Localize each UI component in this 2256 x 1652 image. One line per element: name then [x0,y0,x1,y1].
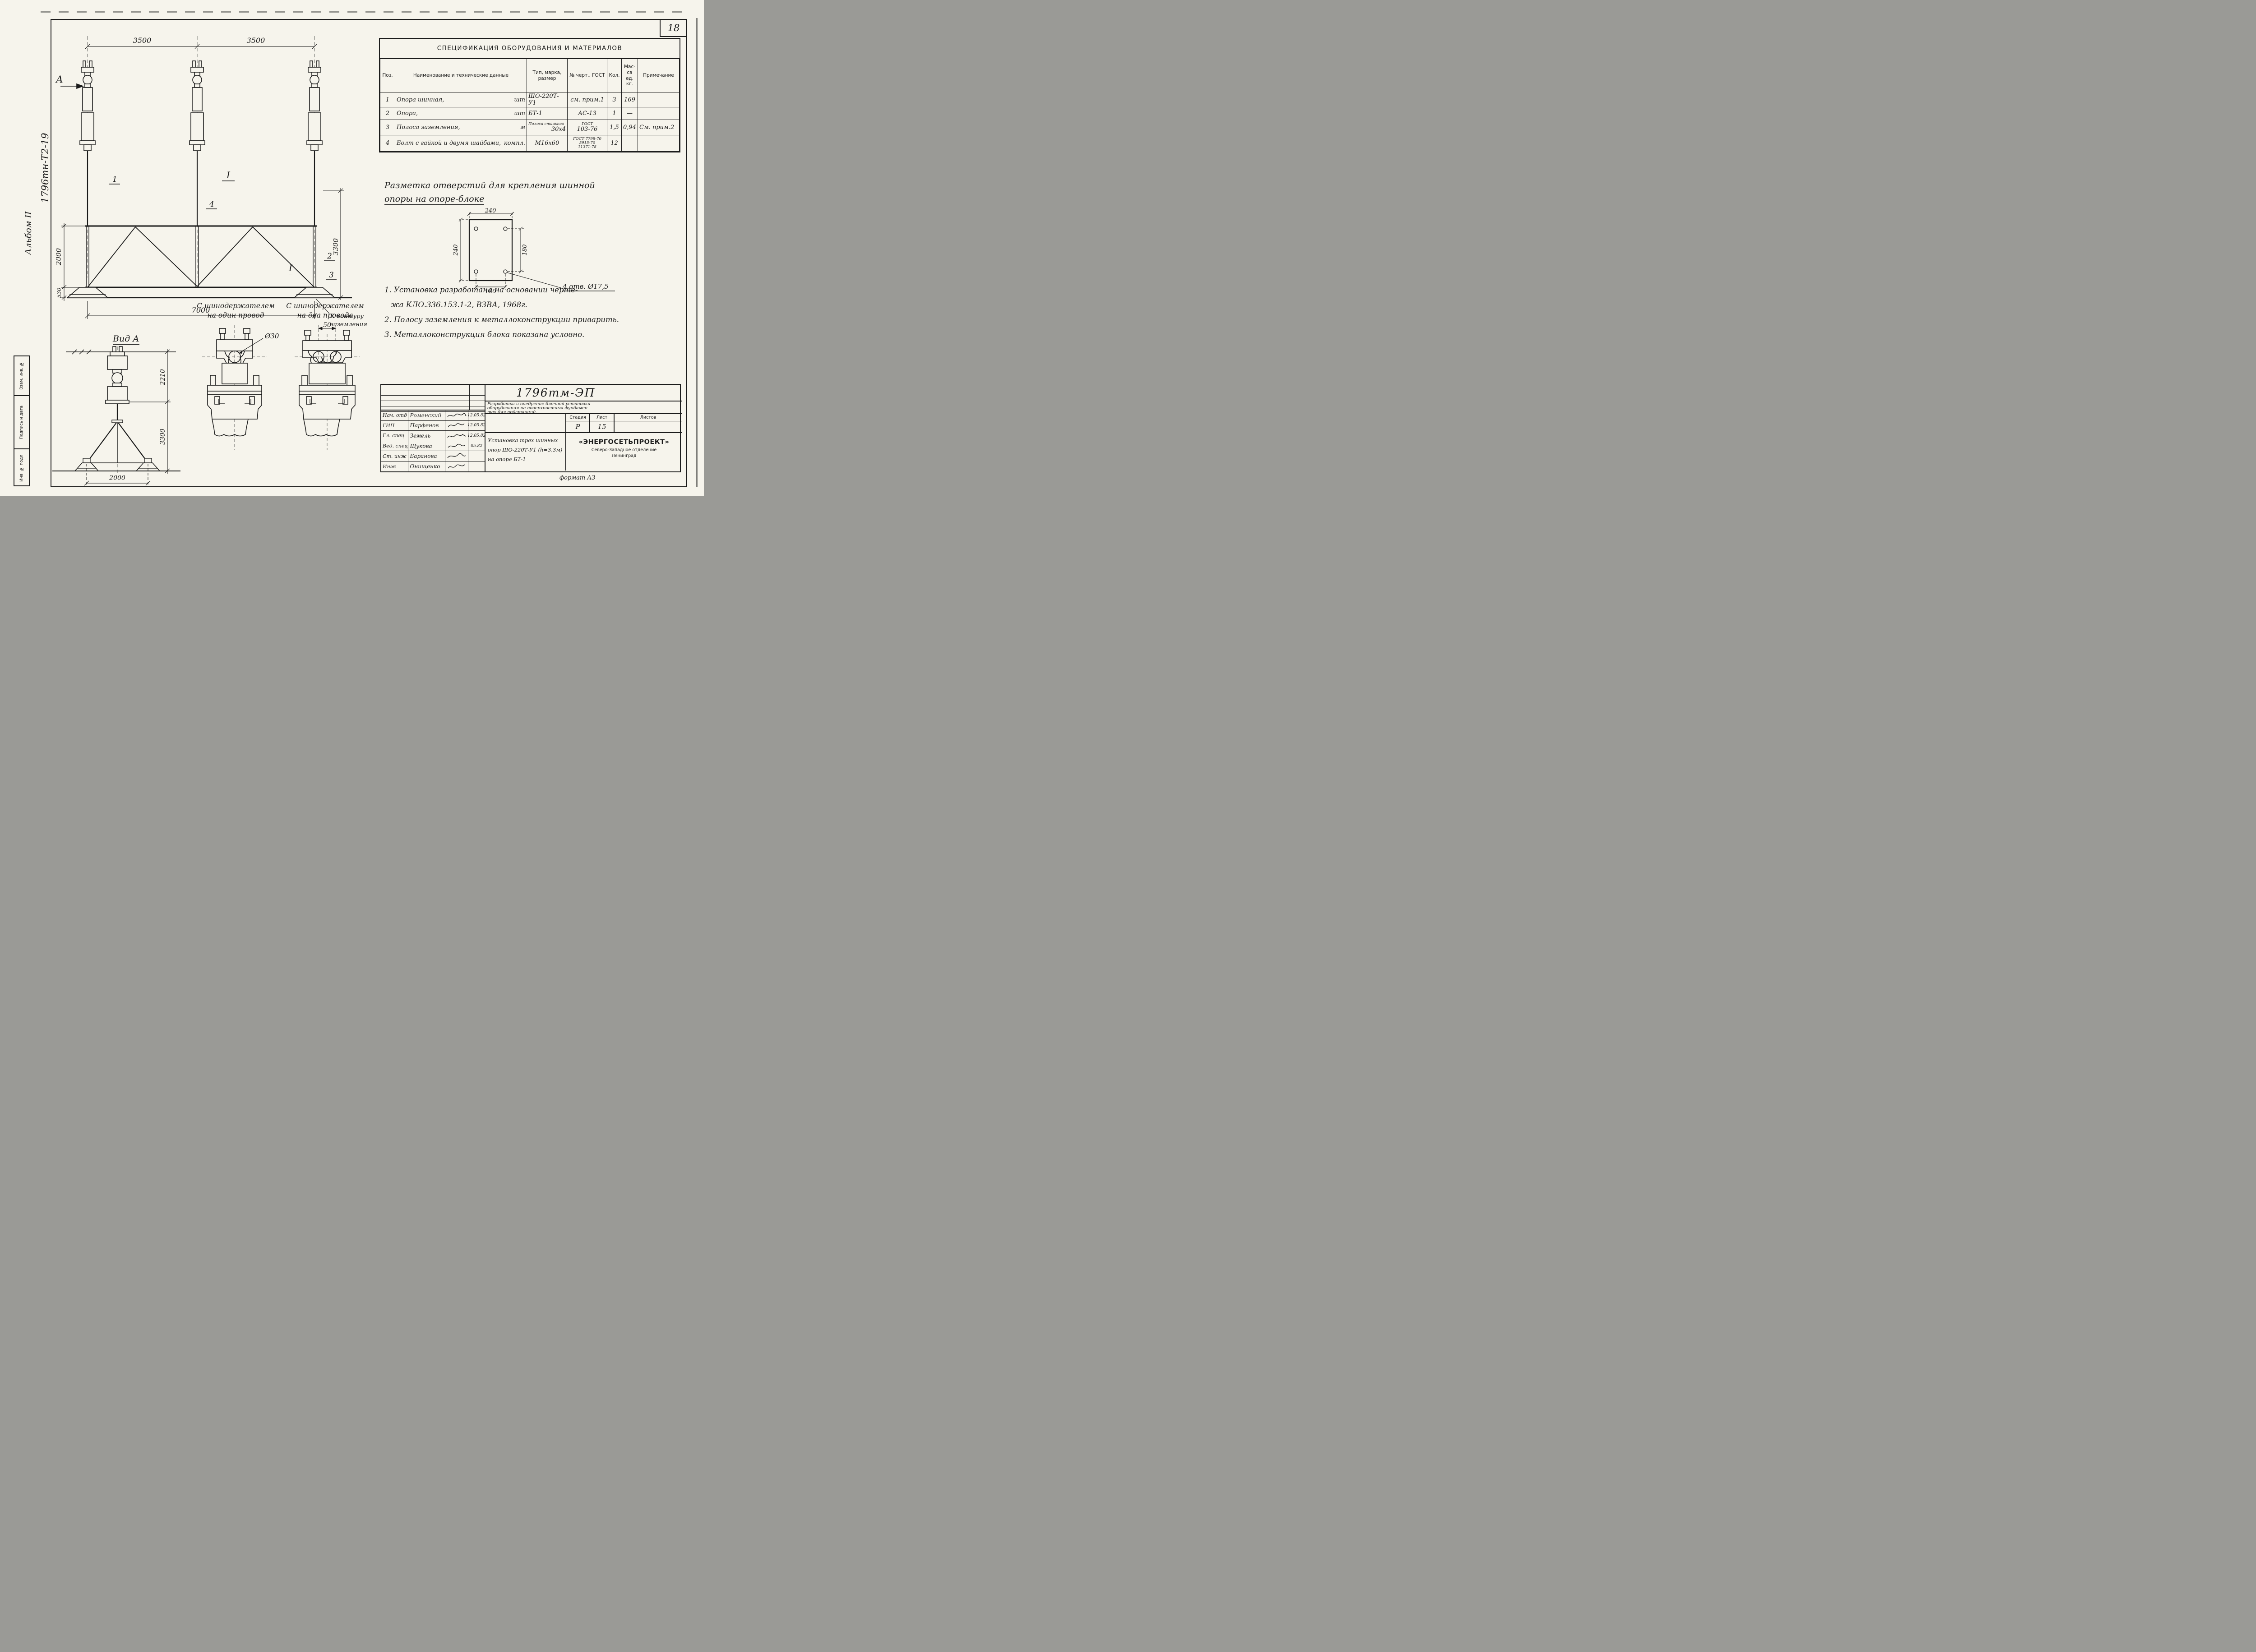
view-a-dim-lines [129,349,171,474]
note-3: 3. Металлоконструкция блока показана усл… [384,327,689,342]
signature-icon [445,461,469,472]
scan-edge-right [696,18,698,487]
document-number: 1796тм-ЭП [485,385,682,401]
truss-structure [85,226,317,287]
sig-row-2: ГИП Парфенов 12.05.82 [381,421,485,431]
col-gost: № черт., ГОСТ [568,59,607,92]
blank-cell [485,414,566,432]
dim-dia30: Ø30 [264,332,279,340]
scan-edge-top [41,11,686,13]
pos-label-3: 3 [329,271,334,280]
signature-icon [445,421,469,431]
col-mass: Мас-са ед. кг. [622,59,638,92]
col-qty: Кол. [607,59,622,92]
spec-row-2: 2 Опора,шт БТ-1 АС-13 1 — [380,107,680,120]
plate-dim-lines [459,211,524,290]
dim-2000-left: 2000 [55,248,63,266]
format-note: формат А3 [559,475,595,481]
stamp-podpis-data: Подпись и дата [14,396,29,449]
sig-row-5: Ст. инж Баранова [381,451,485,461]
title-block-left: Нач. отд Роменский 12.05.82 ГИП Парфенов… [381,385,485,471]
signature-icon [445,451,469,461]
dim-2000-view-a: 2000 [109,475,125,482]
col-type: Тип, марка, размер [527,59,568,92]
sig-row-6: Инж Онищенко [381,461,485,472]
col-name: Наименование и технические данные [395,59,527,92]
caption-one-wire: С шинодержателем на один провод [192,301,280,320]
project-description: Разработка и внедрение блочной установки… [485,401,682,414]
note-1: 1. Установка разработана на основании че… [384,282,689,297]
dim-240-top: 240 [485,208,496,214]
caption-two-wires: С шинодержателем на два провода [279,301,371,320]
dim-3500-right: 3500 [247,36,265,45]
sig-row-4: Вед. спец Щукова 05.82 [381,441,485,452]
dim-530: 530 [56,287,62,298]
notes-block: 1. Установка разработана на основании че… [384,282,689,342]
plate-holes [474,227,507,273]
spec-row-4: 4 Болт с гайкой и двумя шайбами,компл. М… [380,135,680,152]
margin-document-code: 1796тн-Т2-19 [40,36,51,203]
col-pos: Поз. [380,59,395,92]
hole-layout-heading: Разметка отверстий для крепления шинной … [384,179,595,206]
dim-3300-view-a: 3300 [159,429,166,445]
view-arrow-a-label: А [55,74,63,85]
foundation-right [294,287,335,298]
sig-row-3: Гл. спец Земель 12.05.82 [381,431,485,441]
bus-holder-one-wire-drawing: Ø30 [199,323,293,454]
spec-title: СПЕЦИФИКАЦИЯ ОБОРУДОВАНИЯ И МАТЕРИАЛОВ [380,39,680,59]
insulator-column-3 [307,61,322,226]
foundation-left [67,287,108,298]
dim-3300-right: 3300 [332,238,340,255]
organization-block: «ЭНЕРГОСЕТЬПРОЕКТ» Северо-Западное отдел… [566,433,682,471]
note-2: 2. Полосу заземления к металлоконструкци… [384,312,689,327]
page-number: 18 [660,20,687,37]
dim-top-spans [85,44,317,49]
drawing-title: Установка трех шинных опор ШО-220Т-У1 (h… [485,433,566,471]
signature-icon [445,441,469,451]
pos-label-2: 2 [327,252,332,261]
stamp-inv-podl: Инв. № подл. [14,449,29,485]
spec-row-1: 1 Опора шинная,шт ШО-220Т-У1 см. прим.1 … [380,92,680,107]
pos-label-4: 4 [209,200,214,209]
view-a-drawing: 2210 3300 2000 [36,346,190,495]
bus-holder-two-wires-drawing: 50 [291,323,386,454]
spec-table: СПЕЦИФИКАЦИЯ ОБОРУДОВАНИЯ И МАТЕРИАЛОВ П… [379,38,680,152]
col-note: Примечание [638,59,680,92]
dim-2210: 2210 [159,369,166,386]
sheets-cell: Листов [615,414,682,432]
view-a-tripod [75,420,160,471]
pos-label-1: 1 [112,175,117,184]
margin-album-label: Альбом II [23,156,33,255]
view-a-title: Вид А [113,334,139,344]
dim-3500-left: 3500 [133,36,152,45]
sig-row-1: Нач. отд Роменский 12.05.82 [381,411,485,421]
title-block: Нач. отд Роменский 12.05.82 ГИП Парфенов… [380,384,681,472]
front-view-drawing: 3500 3500 А 1 4 I [54,25,415,341]
spec-row-3: 3 Полоса заземления,м Полоса стальная30х… [380,120,680,135]
view-arrow-a-icon [60,84,83,88]
section-mark-I: I [226,170,231,180]
note-1b: жа КЛО.336.153.1-2, ВЗВА, 1968г. [384,297,689,312]
signature-rows: Нач. отд Роменский 12.05.82 ГИП Парфенов… [381,411,485,472]
insulator-column-2 [190,61,205,226]
revision-grid [381,385,485,411]
signature-icon [445,431,469,441]
stamp-vzam-inv: Взам. инв. № [14,356,29,396]
detail-section-label: I [289,263,292,273]
dim-180-right: 180 [522,245,528,256]
signature-icon [445,411,469,420]
dim-50: 50 [323,322,331,329]
hole-layout-drawing: 240 240 180 180 4 отв. Ø17,5 [431,208,625,294]
binding-stamp-column: Взам. инв. № Подпись и дата Инв. № подл. [14,355,30,486]
stage-cell: Стадия Р [566,414,590,432]
title-block-right: 1796тм-ЭП Разработка и внедрение блочной… [485,385,682,471]
view-a-insulator [106,346,129,422]
drawing-sheet: 18 1796тн-Т2-19 Альбом II Взам. инв. № П… [0,0,704,496]
dim-240-left: 240 [453,245,459,256]
sheet-cell: Лист 15 [590,414,615,432]
